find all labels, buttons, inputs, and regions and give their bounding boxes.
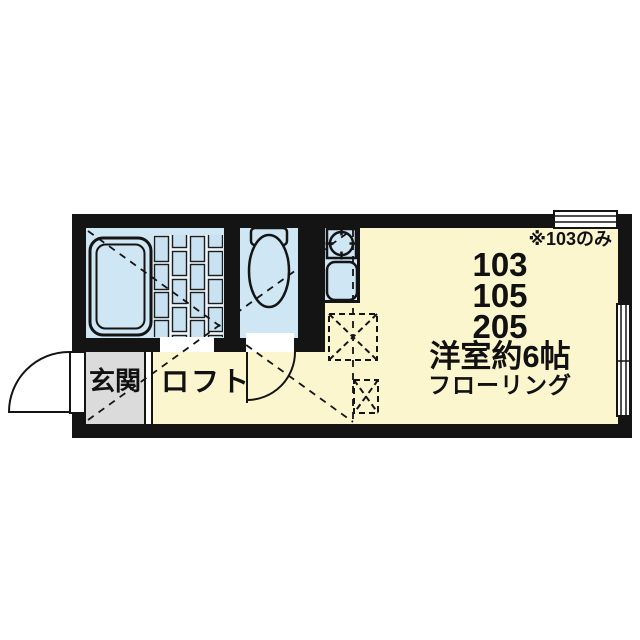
entrance-step-edge bbox=[146, 352, 153, 424]
window-icon-top bbox=[553, 210, 618, 229]
entrance-label: 玄関 bbox=[89, 368, 141, 394]
floor-plan: ※103のみ 103 105 205 洋室約6帖 フローリング 玄関 ロフト bbox=[0, 0, 640, 640]
toilet-door-opening bbox=[246, 333, 294, 352]
toilet-room-floor bbox=[240, 228, 298, 338]
entry-door-swing-icon bbox=[9, 352, 69, 412]
wall-bath-toilet bbox=[224, 228, 240, 352]
window-icon-right bbox=[616, 303, 631, 417]
flooring-label: フローリング bbox=[428, 374, 572, 397]
room-type-label: 洋室約6帖 bbox=[429, 341, 570, 372]
bathroom-door-opening bbox=[160, 333, 214, 352]
loft-label: ロフト bbox=[161, 368, 251, 396]
kitchen-counter bbox=[325, 228, 360, 303]
entry-door-leaf bbox=[69, 351, 86, 414]
note-103-only: ※103のみ bbox=[528, 230, 612, 248]
wall-toilet-kitchen bbox=[298, 228, 325, 352]
bathroom-floor bbox=[86, 228, 224, 338]
